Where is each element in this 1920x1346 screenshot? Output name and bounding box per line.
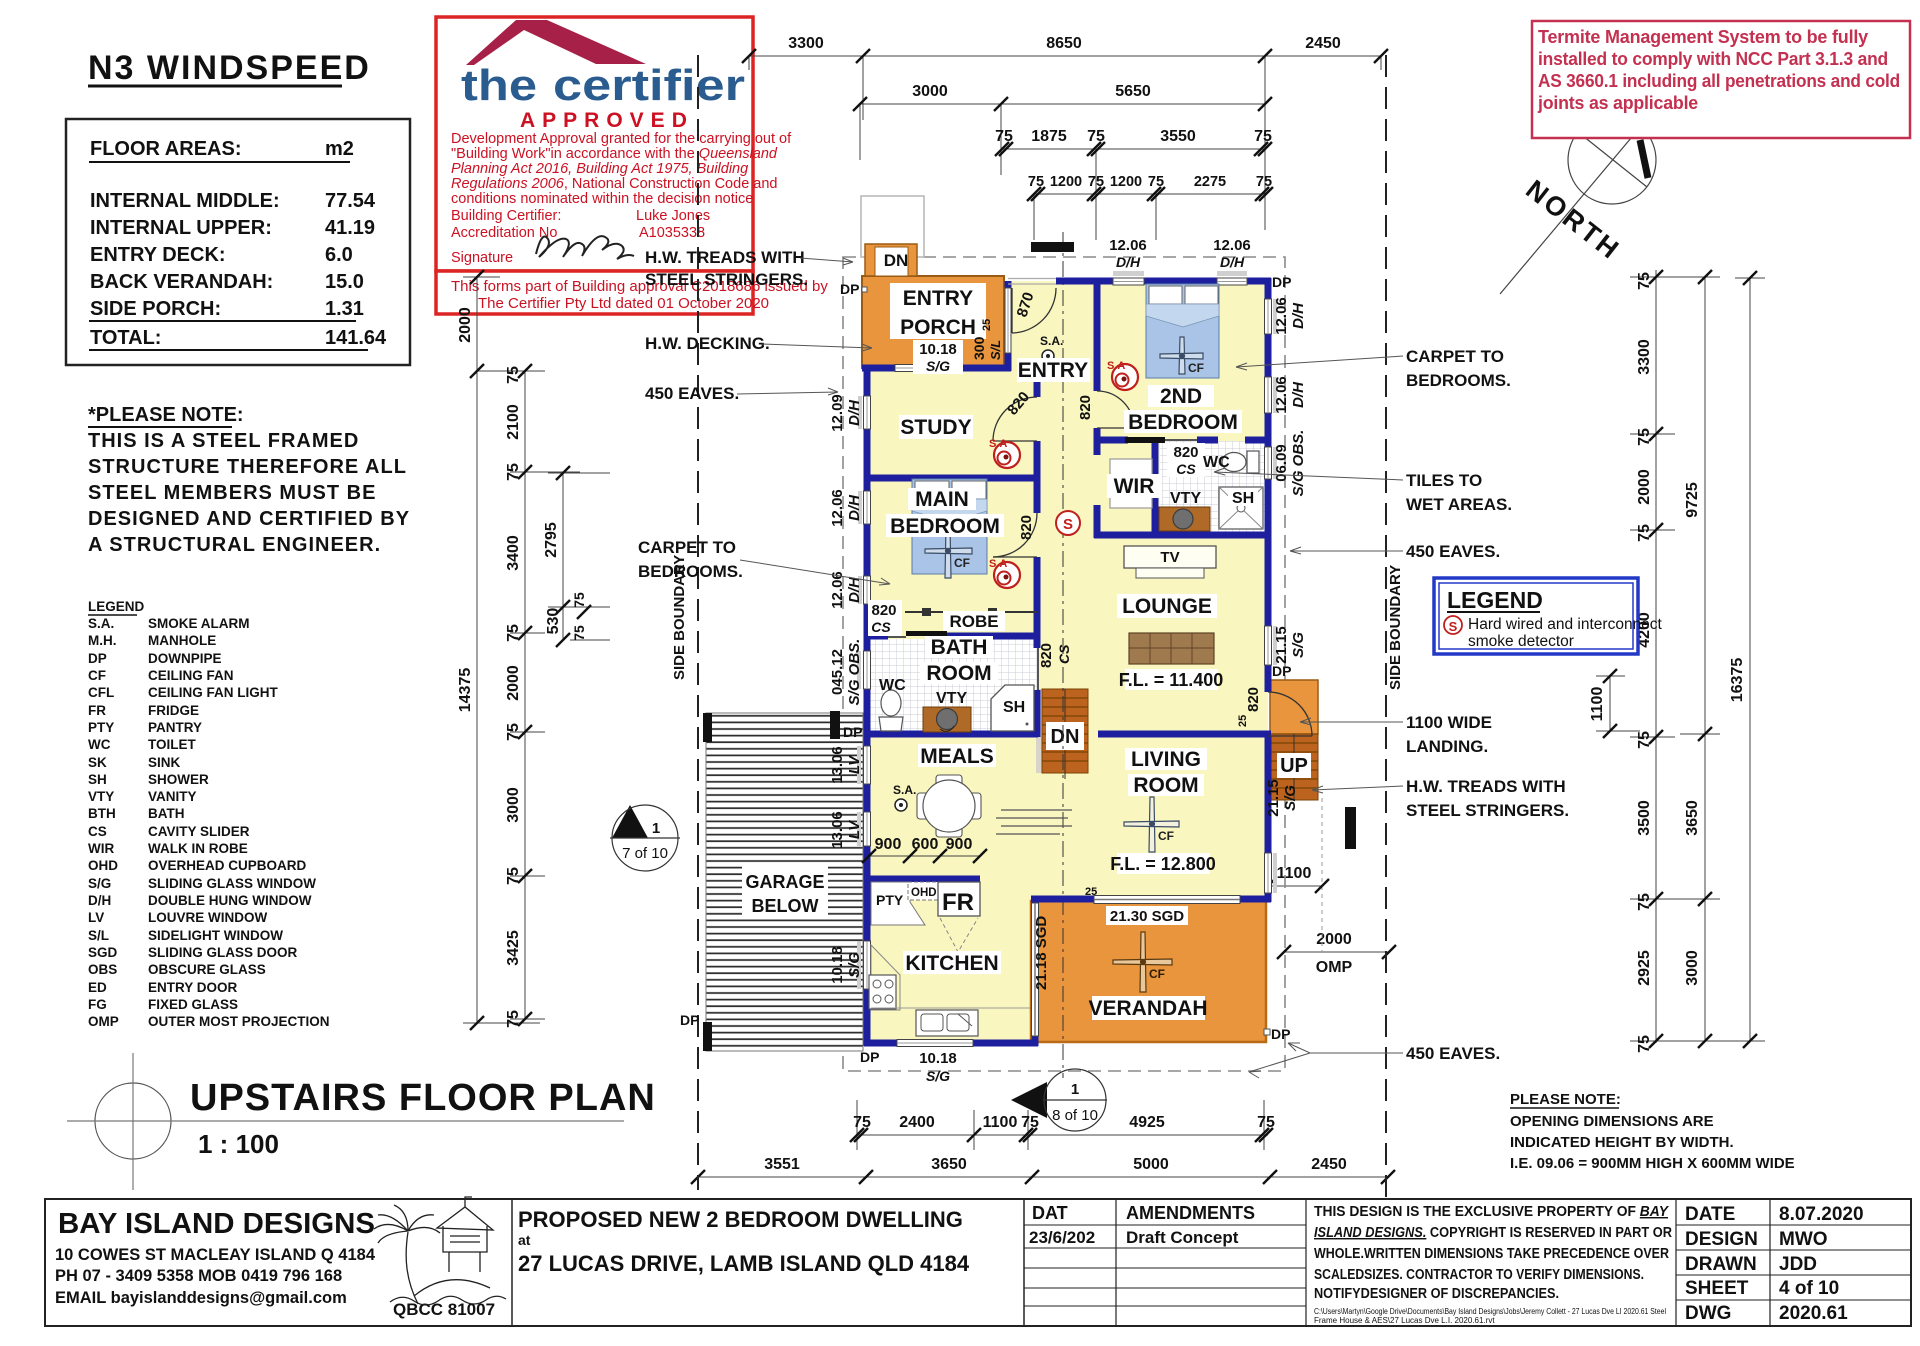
svg-text:15.0: 15.0: [325, 271, 364, 293]
svg-text:SH: SH: [1003, 699, 1025, 716]
svg-text:CS: CS: [871, 619, 891, 635]
svg-text:UPSTAIRS FLOOR PLAN: UPSTAIRS FLOOR PLAN: [190, 1077, 656, 1119]
svg-text:VTY: VTY: [88, 789, 114, 804]
svg-text:25: 25: [1085, 886, 1097, 898]
svg-text:Frame House & AES\27 Lucas Dve: Frame House & AES\27 Lucas Dve L.I. 2020…: [1314, 1316, 1495, 1325]
svg-text:C:\Users\Martyn\Google Drive\D: C:\Users\Martyn\Google Drive\Documents\B…: [1314, 1307, 1666, 1316]
svg-text:LV: LV: [846, 819, 863, 839]
svg-text:VERANDAH: VERANDAH: [1088, 997, 1207, 1020]
svg-text:75: 75: [1636, 272, 1653, 290]
svg-text:BEDROOMS.: BEDROOMS.: [638, 562, 743, 581]
svg-text:5000: 5000: [1133, 1156, 1169, 1173]
svg-text:DP: DP: [88, 651, 107, 666]
svg-text:3000: 3000: [912, 83, 948, 100]
svg-text:530: 530: [545, 608, 562, 635]
svg-text:2000: 2000: [457, 307, 474, 343]
svg-text:CF: CF: [1158, 829, 1174, 843]
svg-text:75: 75: [1636, 731, 1653, 749]
svg-text:at: at: [518, 1232, 531, 1248]
svg-text:3425: 3425: [505, 930, 522, 966]
svg-text:BACK VERANDAH:: BACK VERANDAH:: [90, 271, 273, 293]
svg-text:D/H: D/H: [846, 399, 863, 426]
svg-text:8650: 8650: [1046, 35, 1082, 52]
svg-text:BEDROOMS.: BEDROOMS.: [1406, 371, 1511, 390]
svg-text:9725: 9725: [1684, 482, 1701, 518]
svg-text:S/G OBS.: S/G OBS.: [1290, 430, 1307, 497]
svg-text:14375: 14375: [457, 668, 474, 713]
svg-text:OMP: OMP: [88, 1014, 119, 1029]
svg-text:CF: CF: [88, 668, 106, 683]
svg-text:JDD: JDD: [1779, 1254, 1817, 1275]
svg-text:WHOLE.WRITTEN DIMENSIONS TAKE: WHOLE.WRITTEN DIMENSIONS TAKE PRECEDENCE…: [1314, 1246, 1669, 1262]
svg-text:SH: SH: [1232, 490, 1254, 507]
svg-text:NOTIFYDESIGNER OF DISCREPANCIE: NOTIFYDESIGNER OF DISCREPANCIES.: [1314, 1286, 1559, 1302]
svg-text:3300: 3300: [1636, 339, 1653, 375]
svg-text:LEGEND: LEGEND: [88, 599, 145, 614]
svg-text:DP: DP: [843, 724, 862, 740]
svg-text:Termite Management System to b: Termite Management System to be fully: [1538, 27, 1868, 47]
svg-text:21.18 SGD: 21.18 SGD: [1033, 916, 1050, 990]
svg-text:D/H: D/H: [846, 576, 863, 603]
svg-text:75: 75: [1148, 174, 1164, 190]
svg-text:LOUNGE: LOUNGE: [1122, 595, 1212, 618]
svg-text:F.L. = 12.800: F.L. = 12.800: [1110, 854, 1216, 874]
svg-text:LV: LV: [846, 754, 863, 774]
svg-text:12.06: 12.06: [1273, 297, 1290, 335]
svg-text:S/G: S/G: [926, 358, 950, 374]
svg-text:900: 900: [946, 836, 973, 853]
svg-text:F.L. = 11.400: F.L. = 11.400: [1119, 670, 1224, 690]
svg-text:820: 820: [1038, 643, 1055, 668]
svg-text:Draft Concept: Draft Concept: [1126, 1228, 1239, 1247]
svg-text:PH 07 - 3409 5358 MOB 0419: PH 07 - 3409 5358 MOB 0419 796 168: [55, 1267, 342, 1285]
svg-text:VTY: VTY: [936, 690, 967, 707]
svg-text:AMENDMENTS: AMENDMENTS: [1126, 1203, 1255, 1223]
svg-text:DN: DN: [1051, 726, 1080, 748]
svg-text:75: 75: [505, 723, 522, 741]
svg-text:WIR: WIR: [88, 841, 114, 856]
svg-text:820: 820: [1245, 687, 1262, 712]
svg-text:Development Approval granted f: Development Approval granted for the car…: [451, 131, 792, 147]
svg-text:1: 1: [652, 820, 660, 837]
svg-text:OMP: OMP: [1316, 959, 1353, 976]
svg-text:certifier: certifier: [553, 61, 745, 110]
svg-text:FR: FR: [942, 889, 974, 916]
svg-text:ROBE: ROBE: [949, 612, 998, 631]
svg-text:FIXED GLASS: FIXED GLASS: [148, 997, 238, 1012]
svg-text:ISLAND DESIGNS. COPYRIGHT IS R: ISLAND DESIGNS. COPYRIGHT IS RESERVED IN…: [1314, 1225, 1672, 1241]
svg-text:TOILET: TOILET: [148, 737, 197, 752]
svg-text:CF: CF: [1188, 361, 1204, 375]
svg-text:DP: DP: [680, 1012, 699, 1028]
svg-text:2450: 2450: [1305, 35, 1341, 52]
svg-text:S/G OBS.: S/G OBS.: [846, 639, 863, 706]
svg-text:CF: CF: [954, 556, 970, 570]
svg-text:Luke Jones: Luke Jones: [636, 208, 710, 224]
svg-text:2000: 2000: [1636, 469, 1653, 505]
svg-text:75: 75: [853, 1114, 871, 1131]
svg-text:joints as applicable: joints as applicable: [1537, 93, 1698, 113]
svg-text:S/G: S/G: [1282, 785, 1299, 811]
svg-text:75: 75: [1087, 128, 1105, 145]
svg-text:MWO: MWO: [1779, 1229, 1828, 1250]
svg-text:75: 75: [505, 867, 522, 885]
svg-text:CEILING FAN: CEILING FAN: [148, 668, 234, 683]
svg-text:1200: 1200: [1050, 174, 1082, 190]
svg-text:3650: 3650: [1684, 800, 1701, 836]
svg-text:5650: 5650: [1115, 83, 1151, 100]
svg-text:2795: 2795: [543, 522, 560, 558]
svg-text:N3 WINDSPEED: N3 WINDSPEED: [88, 49, 371, 87]
svg-text:21.15: 21.15: [1273, 626, 1290, 664]
svg-text:1100: 1100: [983, 1114, 1018, 1131]
svg-text:THIS IS A STEEL FRAMED: THIS IS A STEEL FRAMED: [88, 430, 359, 452]
svg-text:the: the: [461, 61, 537, 110]
svg-text:75: 75: [1636, 428, 1653, 446]
svg-text:045.12: 045.12: [829, 649, 846, 695]
svg-text:*PLEASE NOTE:: *PLEASE NOTE:: [88, 404, 244, 426]
svg-text:3550: 3550: [1160, 128, 1196, 145]
svg-text:INTERNAL UPPER:: INTERNAL UPPER:: [90, 217, 272, 239]
svg-text:UP: UP: [1280, 755, 1308, 777]
svg-text:FLOOR AREAS:: FLOOR AREAS:: [90, 138, 241, 160]
svg-text:D/H: D/H: [88, 893, 111, 908]
svg-text:75: 75: [995, 128, 1013, 145]
svg-text:STEEL MEMBERS MUST BE: STEEL MEMBERS MUST BE: [88, 482, 376, 504]
svg-text:ENTRY DECK:: ENTRY DECK:: [90, 244, 226, 266]
svg-text:D/H: D/H: [1290, 302, 1307, 329]
svg-text:Building Certifier:: Building Certifier:: [451, 208, 561, 224]
svg-text:13.06: 13.06: [829, 746, 846, 784]
svg-text:SMOKE ALARM: SMOKE ALARM: [148, 616, 250, 631]
svg-text:SK: SK: [88, 755, 107, 770]
svg-text:PANTRY: PANTRY: [148, 720, 202, 735]
svg-text:DRAWN: DRAWN: [1685, 1254, 1757, 1275]
svg-text:DP: DP: [840, 281, 859, 297]
svg-text:3400: 3400: [505, 535, 522, 571]
svg-text:CS: CS: [1056, 644, 1072, 664]
svg-text:75: 75: [505, 463, 522, 481]
svg-text:S/G: S/G: [88, 876, 111, 891]
svg-text:23/6/202: 23/6/202: [1029, 1228, 1095, 1247]
svg-text:2000: 2000: [505, 665, 522, 701]
svg-text:BELOW: BELOW: [752, 896, 819, 916]
svg-text:SLIDING GLASS WINDOW: SLIDING GLASS WINDOW: [148, 876, 316, 891]
svg-text:SIDE PORCH:: SIDE PORCH:: [90, 298, 221, 320]
svg-text:GARAGE: GARAGE: [745, 872, 824, 892]
svg-text:ROOM: ROOM: [1133, 774, 1198, 797]
svg-text:10.18: 10.18: [829, 946, 846, 984]
svg-text:WET AREAS.: WET AREAS.: [1406, 495, 1512, 514]
svg-text:12.06: 12.06: [1273, 376, 1290, 414]
svg-text:75: 75: [505, 624, 522, 642]
svg-text:75: 75: [571, 592, 587, 608]
svg-text:7 of 10: 7 of 10: [622, 845, 668, 862]
svg-text:12.06: 12.06: [1109, 237, 1147, 254]
svg-text:75: 75: [1256, 174, 1272, 190]
svg-text:STRUCTURE THEREFORE ALL: STRUCTURE THEREFORE ALL: [88, 456, 407, 478]
svg-text:2400: 2400: [899, 1114, 935, 1131]
svg-text:06.09: 06.09: [1273, 444, 1290, 482]
svg-text:S/G: S/G: [926, 1068, 950, 1084]
svg-text:75: 75: [1254, 128, 1272, 145]
svg-text:AS 3660.1 including all penetr: AS 3660.1 including all penetrations and…: [1538, 71, 1900, 91]
svg-text:820: 820: [1077, 395, 1094, 420]
svg-text:300: 300: [971, 336, 987, 360]
svg-text:PORCH: PORCH: [900, 316, 976, 339]
svg-text:2ND: 2ND: [1160, 385, 1202, 408]
svg-text:ENTRY: ENTRY: [903, 287, 973, 310]
svg-text:PTY: PTY: [88, 720, 114, 735]
svg-text:6.0: 6.0: [325, 244, 353, 266]
svg-text:OPENING DIMENSIONS ARE: OPENING DIMENSIONS ARE: [1510, 1113, 1714, 1130]
svg-text:27 LUCAS DRIVE, LAMB ISLAND: 27 LUCAS DRIVE, LAMB ISLAND QLD 4184: [518, 1251, 970, 1276]
svg-text:D/H: D/H: [1220, 254, 1245, 270]
svg-text:DN: DN: [884, 251, 909, 270]
svg-text:S.A.: S.A.: [88, 616, 114, 631]
svg-text:PROPOSED NEW 2 BEDROOM DWELLIN: PROPOSED NEW 2 BEDROOM DWELLING: [518, 1207, 963, 1232]
svg-text:2925: 2925: [1636, 950, 1653, 986]
svg-text:BATH: BATH: [148, 806, 185, 821]
svg-text:3551: 3551: [764, 1156, 800, 1173]
svg-text:450 EAVES.: 450 EAVES.: [1406, 1044, 1500, 1063]
svg-text:1100: 1100: [1277, 865, 1312, 882]
svg-text:SINK: SINK: [148, 755, 181, 770]
svg-text:1200: 1200: [1110, 174, 1142, 190]
svg-text:EMAIL bayislanddesigns@: EMAIL bayislanddesigns@gmail.com: [55, 1289, 347, 1307]
svg-text:75: 75: [505, 366, 522, 384]
svg-text:S/L: S/L: [88, 928, 109, 943]
svg-text:S.A: S.A: [989, 558, 1007, 570]
svg-text:SGD: SGD: [88, 945, 118, 960]
svg-text:FRIDGE: FRIDGE: [148, 703, 199, 718]
svg-text:75: 75: [1021, 1114, 1039, 1131]
svg-text:16375: 16375: [1729, 658, 1746, 703]
svg-text:DOUBLE HUNG WINDOW: DOUBLE HUNG WINDOW: [148, 893, 312, 908]
svg-text:25: 25: [1237, 715, 1249, 727]
svg-text:75: 75: [1088, 174, 1104, 190]
svg-text:10 COWES ST MACLEAY ISLAND Q: 10 COWES ST MACLEAY ISLAND Q 4184: [55, 1246, 376, 1264]
svg-text:OBSCURE GLASS: OBSCURE GLASS: [148, 962, 266, 977]
svg-text:1100: 1100: [1589, 687, 1606, 722]
svg-text:Regulations 2006, National Con: Regulations 2006, National Construction …: [451, 176, 777, 192]
svg-text:2275: 2275: [1194, 174, 1226, 190]
svg-text:SIDELIGHT WINDOW: SIDELIGHT WINDOW: [148, 928, 283, 943]
svg-text:ENTRY DOOR: ENTRY DOOR: [148, 980, 238, 995]
svg-text:1 : 100: 1 : 100: [198, 1129, 279, 1159]
svg-text:MAIN: MAIN: [915, 488, 969, 511]
svg-text:WALK IN ROBE: WALK IN ROBE: [148, 841, 248, 856]
svg-text:DESIGNED AND CERTIFIED BY: DESIGNED AND CERTIFIED BY: [88, 508, 410, 530]
svg-text:TOTAL:: TOTAL:: [90, 327, 161, 349]
svg-text:PTY: PTY: [876, 892, 904, 908]
svg-text:141.64: 141.64: [325, 327, 387, 349]
svg-text:FR: FR: [88, 703, 106, 718]
svg-text:The Certifier Pty Ltd dated 01: The Certifier Pty Ltd dated 01 October 2…: [478, 295, 769, 312]
svg-text:WC: WC: [88, 737, 111, 752]
svg-text:CF: CF: [1149, 967, 1165, 981]
svg-text:DP: DP: [1272, 663, 1291, 679]
svg-text:DAT: DAT: [1032, 1203, 1068, 1223]
svg-text:APPROVED: APPROVED: [520, 109, 694, 132]
svg-text:I.E. 09.06 = 900MM HIGH X 600M: I.E. 09.06 = 900MM HIGH X 600MM WIDE: [1510, 1155, 1795, 1172]
svg-text:WC: WC: [1203, 454, 1230, 471]
svg-text:75: 75: [1636, 893, 1653, 911]
svg-text:H.W. TREADS WITH: H.W. TREADS WITH: [645, 248, 805, 267]
svg-text:12.09: 12.09: [829, 394, 846, 432]
svg-text:installed to comply with NCC P: installed to comply with NCC Part 3.1.3 …: [1538, 49, 1888, 69]
svg-text:BEDROOM: BEDROOM: [890, 515, 1000, 538]
svg-text:LOUVRE WINDOW: LOUVRE WINDOW: [148, 910, 267, 925]
svg-text:D/H: D/H: [1116, 254, 1141, 270]
svg-text:2020.61: 2020.61: [1779, 1303, 1848, 1324]
svg-text:ED: ED: [88, 980, 107, 995]
svg-text:S/L: S/L: [988, 340, 1003, 360]
svg-text:820: 820: [1018, 515, 1035, 540]
svg-text:OUTER MOST PROJECTION: OUTER MOST PROJECTION: [148, 1014, 330, 1029]
svg-text:12.06: 12.06: [1213, 237, 1251, 254]
svg-text:75: 75: [1636, 1035, 1653, 1053]
svg-text:H.W. TREADS WITH: H.W. TREADS WITH: [1406, 777, 1566, 796]
svg-text:75: 75: [571, 625, 587, 641]
svg-text:D/H: D/H: [1290, 381, 1307, 408]
svg-text:A1035338: A1035338: [639, 225, 705, 241]
svg-text:MEALS: MEALS: [920, 745, 994, 768]
svg-text:3300: 3300: [788, 35, 824, 52]
svg-text:INDICATED HEIGHT BY WIDTH.: INDICATED HEIGHT BY WIDTH.: [1510, 1134, 1734, 1151]
svg-text:820: 820: [871, 602, 896, 619]
svg-text:SIDE BOUNDARY: SIDE BOUNDARY: [1387, 565, 1404, 690]
svg-text:STEEL STRINGERS.: STEEL STRINGERS.: [645, 270, 808, 289]
svg-text:A STRUCTURAL ENGINEER.: A STRUCTURAL ENGINEER.: [88, 534, 381, 556]
svg-text:TILES TO: TILES TO: [1406, 471, 1482, 490]
svg-text:2450: 2450: [1311, 1156, 1347, 1173]
svg-text:SCALEDSIZES. CONTRACTOR TO VER: SCALEDSIZES. CONTRACTOR TO VERIFY DIMENS…: [1314, 1267, 1644, 1283]
svg-text:SLIDING GLASS DOOR: SLIDING GLASS DOOR: [148, 945, 298, 960]
svg-text:1.31: 1.31: [325, 298, 364, 320]
svg-text:450 EAVES.: 450 EAVES.: [645, 384, 739, 403]
svg-text:CS: CS: [1176, 461, 1196, 477]
svg-text:STUDY: STUDY: [900, 416, 971, 439]
svg-text:smoke detector: smoke detector: [1468, 633, 1574, 650]
svg-text:8.07.2020: 8.07.2020: [1779, 1204, 1864, 1225]
svg-text:S: S: [1063, 516, 1073, 533]
svg-text:OVERHEAD CUPBOARD: OVERHEAD CUPBOARD: [148, 858, 307, 873]
svg-text:VTY: VTY: [1170, 490, 1201, 507]
svg-text:VANITY: VANITY: [148, 789, 197, 804]
svg-text:S/G: S/G: [846, 952, 863, 978]
svg-text:PLEASE NOTE:: PLEASE NOTE:: [1510, 1091, 1621, 1108]
svg-text:3000: 3000: [1684, 950, 1701, 986]
svg-text:KITCHEN: KITCHEN: [905, 952, 998, 975]
svg-text:450 EAVES.: 450 EAVES.: [1406, 542, 1500, 561]
svg-text:900: 900: [875, 836, 902, 853]
svg-text:LIVING: LIVING: [1131, 748, 1201, 771]
svg-text:OHD: OHD: [88, 858, 118, 873]
svg-text:77.54: 77.54: [325, 190, 376, 212]
svg-text:m2: m2: [325, 138, 354, 160]
svg-text:10.18: 10.18: [919, 1050, 957, 1067]
svg-text:75: 75: [1028, 174, 1044, 190]
svg-text:SHOWER: SHOWER: [148, 772, 209, 787]
svg-text:CEILING FAN LIGHT: CEILING FAN LIGHT: [148, 685, 279, 700]
svg-text:3650: 3650: [931, 1156, 967, 1173]
svg-text:DP: DP: [1271, 1026, 1290, 1042]
svg-text:DP: DP: [1272, 274, 1291, 290]
svg-text:BAY ISLAND DESIGNS: BAY ISLAND DESIGNS: [58, 1208, 375, 1240]
svg-text:75: 75: [1257, 1114, 1275, 1131]
svg-text:600: 600: [912, 836, 939, 853]
svg-text:FG: FG: [88, 997, 107, 1012]
svg-text:CAVITY SLIDER: CAVITY SLIDER: [148, 824, 250, 839]
svg-text:Planning Act 2016, Building Ac: Planning Act 2016, Building Act 1975, Bu…: [451, 161, 748, 177]
svg-text:CS: CS: [88, 824, 107, 839]
svg-text:DOWNPIPE: DOWNPIPE: [148, 651, 222, 666]
svg-text:OBS: OBS: [88, 962, 117, 977]
svg-text:STEEL STRINGERS.: STEEL STRINGERS.: [1406, 801, 1569, 820]
svg-text:CARPET TO: CARPET TO: [638, 538, 736, 557]
svg-text:LEGEND: LEGEND: [1447, 587, 1543, 613]
svg-text:S.A: S.A: [989, 438, 1007, 450]
svg-text:SH: SH: [88, 772, 107, 787]
svg-text:LANDING.: LANDING.: [1406, 737, 1488, 756]
svg-text:2100: 2100: [505, 404, 522, 440]
svg-text:21.30 SGD: 21.30 SGD: [1110, 908, 1184, 925]
svg-text:820: 820: [1173, 444, 1198, 461]
svg-text:S.A: S.A: [1107, 360, 1125, 372]
svg-text:ROOM: ROOM: [926, 662, 991, 685]
svg-text:D/H: D/H: [846, 494, 863, 521]
svg-text:Signature: Signature: [451, 250, 513, 266]
svg-text:BTH: BTH: [88, 806, 116, 821]
svg-text:M.H.: M.H.: [88, 633, 117, 648]
svg-text:THIS DESIGN IS THE EXCLUSIVE P: THIS DESIGN IS THE EXCLUSIVE PROPERTY OF…: [1314, 1204, 1669, 1220]
svg-text:10.18: 10.18: [919, 341, 957, 358]
svg-text:BEDROOM: BEDROOM: [1128, 411, 1238, 434]
svg-text:8 of 10: 8 of 10: [1052, 1107, 1098, 1124]
svg-text:conditions nominated within th: conditions nominated within the decision…: [451, 191, 753, 207]
svg-text:BATH: BATH: [931, 636, 988, 659]
svg-text:OHD: OHD: [911, 887, 937, 899]
svg-text:3000: 3000: [505, 787, 522, 823]
svg-text:13.06: 13.06: [829, 811, 846, 849]
svg-text:4925: 4925: [1129, 1114, 1165, 1131]
svg-text:MANHOLE: MANHOLE: [148, 633, 216, 648]
svg-text:DP: DP: [860, 1049, 879, 1065]
svg-text:S.A.: S.A.: [1040, 334, 1063, 348]
svg-text:CFL: CFL: [88, 685, 114, 700]
svg-text:WC: WC: [879, 677, 906, 694]
svg-text:DWG: DWG: [1685, 1303, 1731, 1324]
svg-text:4 of 10: 4 of 10: [1779, 1278, 1839, 1299]
svg-text:25: 25: [981, 319, 993, 331]
svg-text:H.W. DECKING.: H.W. DECKING.: [645, 334, 770, 353]
svg-text:12.06: 12.06: [829, 489, 846, 527]
svg-text:ENTRY: ENTRY: [1018, 359, 1088, 382]
svg-text:LV: LV: [88, 910, 104, 925]
svg-text:DESIGN: DESIGN: [1685, 1229, 1758, 1250]
svg-text:41.19: 41.19: [325, 217, 375, 239]
svg-text:S/G: S/G: [1290, 632, 1307, 658]
svg-text:75: 75: [505, 1010, 522, 1028]
svg-text:S.A.: S.A.: [893, 783, 916, 797]
svg-text:S: S: [1449, 619, 1458, 634]
svg-text:21.15: 21.15: [1265, 779, 1282, 817]
svg-text:TV: TV: [1160, 549, 1179, 566]
svg-text:1: 1: [1071, 1081, 1079, 1098]
svg-text:1100 WIDE: 1100 WIDE: [1406, 713, 1492, 732]
svg-text:SHEET: SHEET: [1685, 1278, 1749, 1299]
